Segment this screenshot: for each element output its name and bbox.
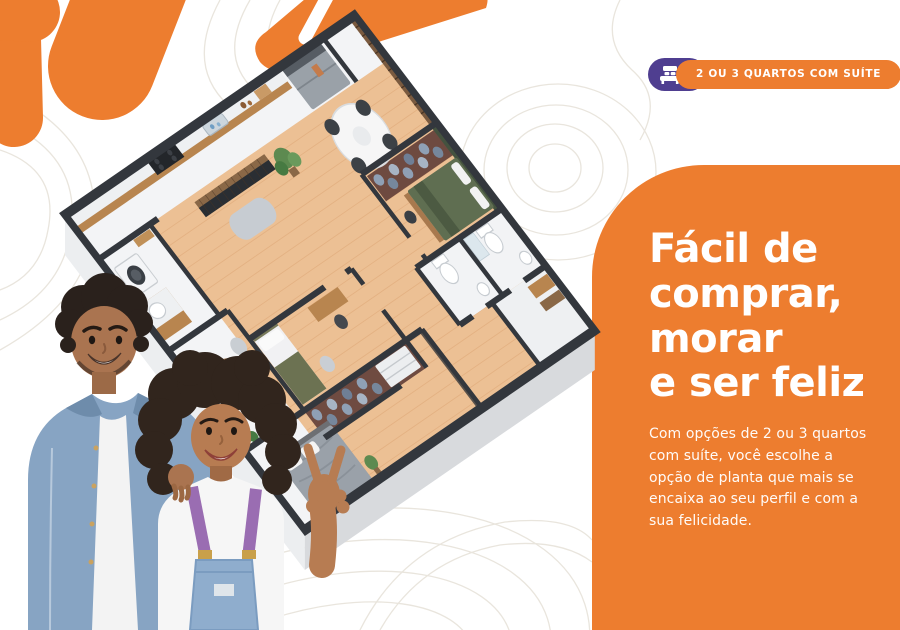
- couple-illustration: [0, 0, 420, 630]
- overall-strap: [248, 489, 256, 558]
- offer-badge: 2 OU 3 QUARTOS COM SUÍTE: [648, 58, 900, 91]
- woman-figure: [135, 350, 350, 630]
- flyer-poster: Fácil de comprar, morar e ser feliz Com …: [0, 0, 900, 630]
- peace-sign-hand: [306, 448, 350, 565]
- offer-badge-label: 2 OU 3 QUARTOS COM SUÍTE: [676, 60, 900, 89]
